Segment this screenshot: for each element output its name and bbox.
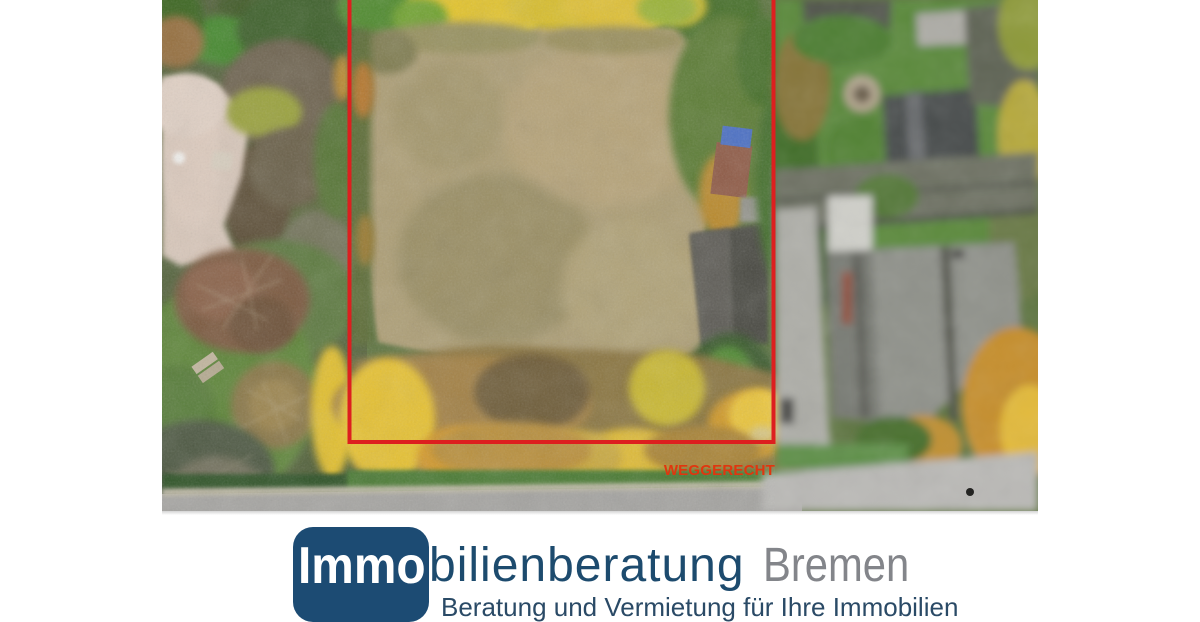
svg-text:WEGGERECHT: WEGGERECHT bbox=[664, 462, 775, 479]
